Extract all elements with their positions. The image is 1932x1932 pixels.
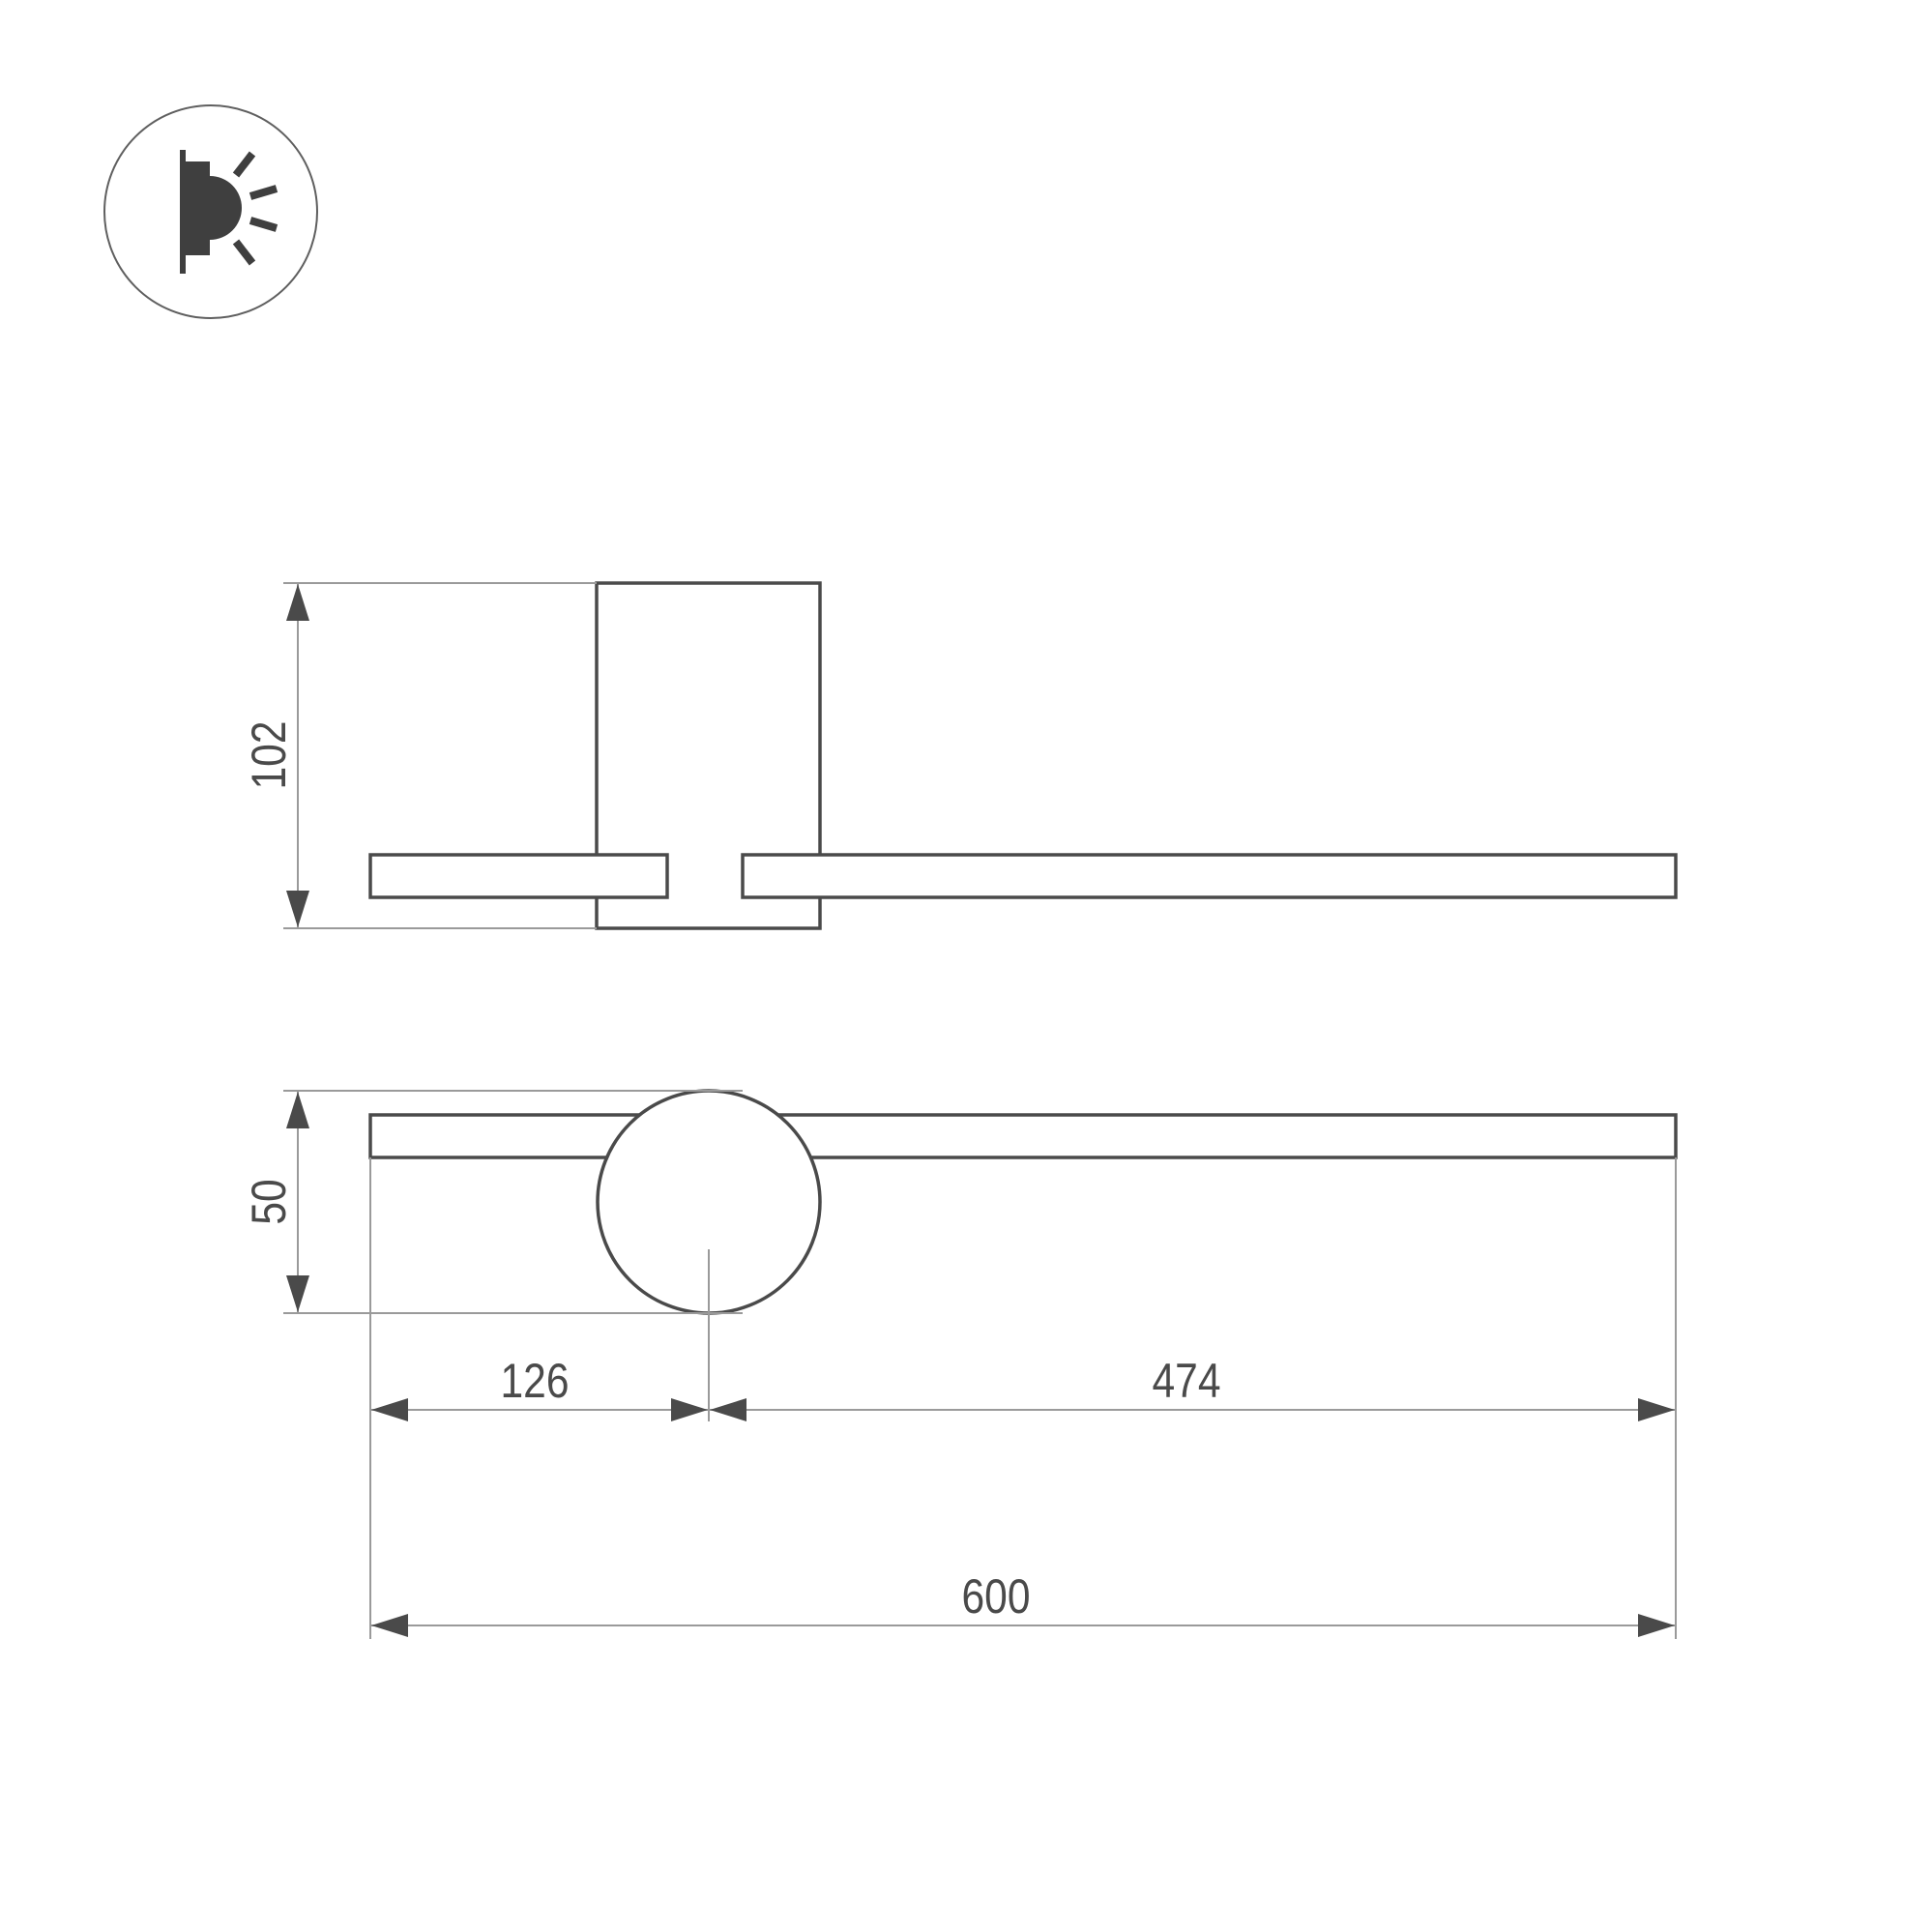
arrowhead-right: [1638, 1398, 1675, 1421]
technical-drawing-canvas: 102 50 12: [0, 0, 1932, 1932]
arrowhead-left: [371, 1398, 408, 1421]
front-view: 50 126 474 600: [242, 1091, 1676, 1639]
wall-lamp-icon: [104, 105, 317, 318]
side-view: 102: [242, 583, 1676, 928]
front-view-bar: [370, 1115, 1676, 1157]
arrowhead-up: [286, 584, 309, 621]
icon-wall-line: [180, 150, 186, 274]
arrowhead-left: [371, 1614, 408, 1637]
arrowhead-down: [286, 1275, 309, 1312]
dimension-label-plate-diameter: 50: [242, 1179, 296, 1224]
arrowhead-right: [1638, 1614, 1675, 1637]
dimension-label-offset-left: 126: [501, 1354, 570, 1408]
arrowhead-left: [710, 1398, 746, 1421]
dimension-total-length: 600: [371, 1569, 1675, 1637]
icon-lamp-body: [186, 161, 210, 255]
dimension-label-offset-right: 474: [1153, 1354, 1221, 1408]
dimension-label-height: 102: [242, 721, 296, 790]
side-view-bar-right: [743, 855, 1676, 897]
technical-drawing: 102 50 12: [0, 0, 1932, 1932]
arrowhead-down: [286, 891, 309, 927]
icon-light-rays: [236, 154, 277, 263]
arrowhead-right: [671, 1398, 708, 1421]
arrowhead-up: [286, 1092, 309, 1128]
dimension-label-total-length: 600: [962, 1569, 1031, 1624]
side-view-bar-left: [370, 855, 667, 897]
icon-lamp-diffuser: [210, 176, 242, 240]
dimension-offsets-row: 126 474: [371, 1354, 1675, 1421]
